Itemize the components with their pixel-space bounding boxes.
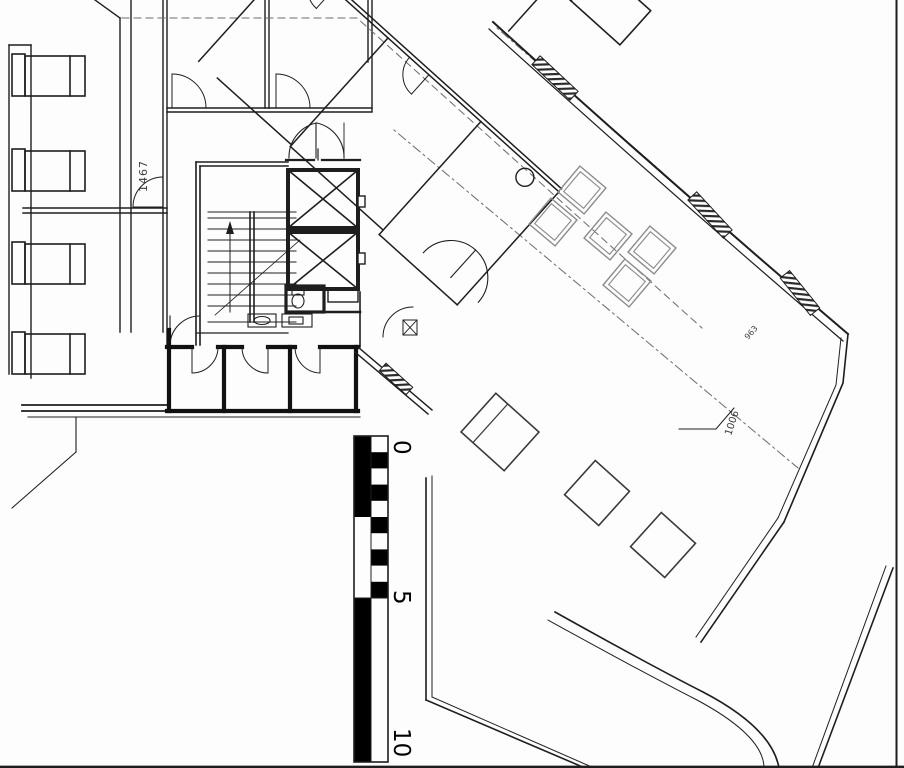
page-frame bbox=[0, 0, 904, 768]
stair-direction-arrow-icon bbox=[226, 221, 234, 312]
dimension-label-963: 963 bbox=[743, 324, 760, 341]
dimension-label-1467: 1467 bbox=[137, 160, 150, 192]
table-icon bbox=[558, 166, 606, 214]
window-icon bbox=[780, 271, 820, 316]
floor-plan-page: 1467 963 1006 0 5 10 bbox=[0, 0, 904, 768]
elevator-shafts bbox=[286, 123, 365, 289]
bed-icon bbox=[12, 149, 85, 191]
bed-icon bbox=[461, 393, 539, 470]
room-furniture bbox=[461, 393, 695, 577]
window-icon bbox=[379, 363, 412, 395]
window-icon bbox=[688, 192, 732, 238]
diagonal-wing bbox=[0, 0, 721, 314]
lounge-tables bbox=[529, 166, 676, 307]
bed-icons-left bbox=[12, 54, 85, 374]
window-icon bbox=[532, 56, 578, 100]
scale-tick-5: 5 bbox=[388, 590, 414, 605]
top-rooms-walls bbox=[167, 0, 372, 112]
table-icon bbox=[584, 212, 632, 260]
curved-facade bbox=[489, 22, 848, 341]
bed-icon bbox=[12, 332, 85, 374]
bed-icon bbox=[12, 54, 85, 96]
table-icon bbox=[565, 461, 630, 526]
scale-tick-0: 0 bbox=[388, 440, 414, 455]
elevator-shaft-icon bbox=[288, 170, 358, 228]
sink-fixtures bbox=[170, 314, 312, 346]
table-icon bbox=[628, 226, 676, 274]
scale-tick-10: 10 bbox=[388, 728, 414, 757]
outer-boundary-walls bbox=[426, 334, 893, 768]
bathroom-door-swings bbox=[192, 347, 320, 373]
table-icon bbox=[603, 259, 651, 307]
floor-plan-canvas: 1467 963 1006 0 5 10 bbox=[0, 0, 904, 768]
wing-door-swings bbox=[133, 0, 480, 94]
elevator-shaft-icon bbox=[288, 232, 358, 289]
dimension-label-1006: 1006 bbox=[723, 409, 741, 437]
bed-icon bbox=[12, 242, 85, 284]
table-icon bbox=[529, 198, 577, 246]
bed-icon bbox=[560, 0, 650, 45]
scale-bar: 0 5 10 bbox=[354, 436, 414, 762]
wing-interface bbox=[355, 307, 432, 414]
table-icon bbox=[631, 513, 696, 578]
double-door-swing-icon bbox=[423, 225, 503, 302]
